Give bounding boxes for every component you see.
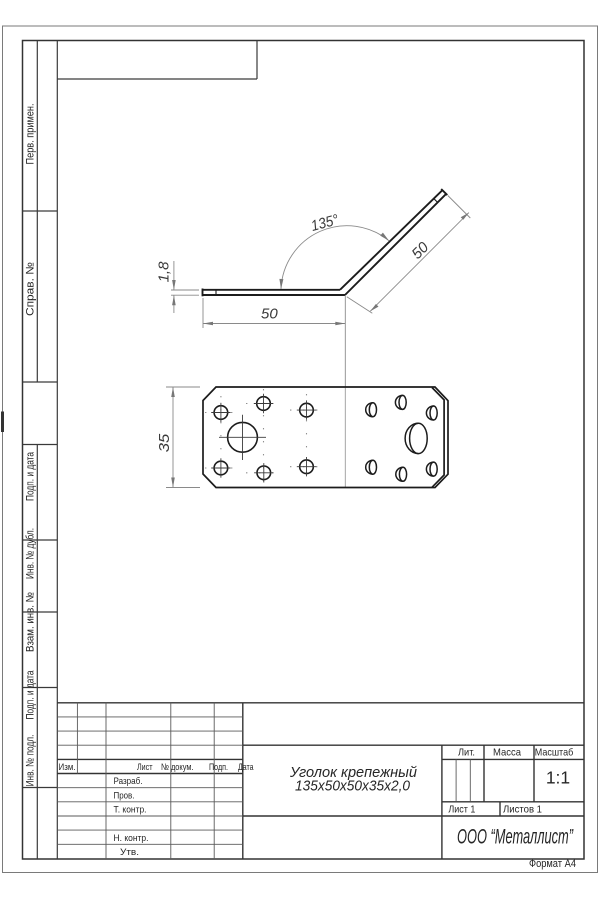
svg-text:Подп. и дата: Подп. и дата <box>24 670 36 720</box>
svg-text:Масштаб: Масштаб <box>535 747 574 759</box>
svg-text:50: 50 <box>408 238 432 262</box>
svg-text:Пров.: Пров. <box>114 790 135 801</box>
svg-text:Изм.: Изм. <box>59 762 76 773</box>
svg-text:50: 50 <box>261 305 278 322</box>
svg-text:Взам. инв. №: Взам. инв. № <box>24 592 36 652</box>
svg-text:Инв. № подл.: Инв. № подл. <box>24 735 36 787</box>
svg-text:Масса: Масса <box>493 747 521 759</box>
svg-text:135х50х50х35х2,0: 135х50х50х35х2,0 <box>295 779 410 795</box>
svg-text:1:1: 1:1 <box>546 767 570 787</box>
svg-text:Подп. и дата: Подп. и дата <box>24 451 36 501</box>
svg-text:Утв.: Утв. <box>120 847 139 858</box>
svg-text:Листов 1: Листов 1 <box>503 804 542 816</box>
svg-text:135°: 135° <box>309 211 340 235</box>
svg-text:Разраб.: Разраб. <box>114 776 143 787</box>
svg-text:35: 35 <box>156 433 173 452</box>
svg-text:Лист: Лист <box>137 762 153 773</box>
svg-text:Дата: Дата <box>238 762 254 773</box>
svg-text:Т. контр.: Т. контр. <box>114 805 147 816</box>
svg-text:ООО “Металлист”: ООО “Металлист” <box>457 825 574 848</box>
svg-text:Формат А4: Формат А4 <box>529 858 576 870</box>
svg-text:Перв. примен.: Перв. примен. <box>24 104 36 165</box>
svg-text:Подп.: Подп. <box>209 762 228 773</box>
svg-text:Лит.: Лит. <box>458 747 475 759</box>
svg-text:Инв. № дубл.: Инв. № дубл. <box>24 528 36 579</box>
svg-text:1,8: 1,8 <box>156 261 173 283</box>
svg-text:Лист 1: Лист 1 <box>448 804 475 816</box>
svg-text:№ докум.: № докум. <box>161 762 194 773</box>
svg-text:Н. контр.: Н. контр. <box>114 833 149 844</box>
svg-text:Справ. №: Справ. № <box>24 262 36 316</box>
